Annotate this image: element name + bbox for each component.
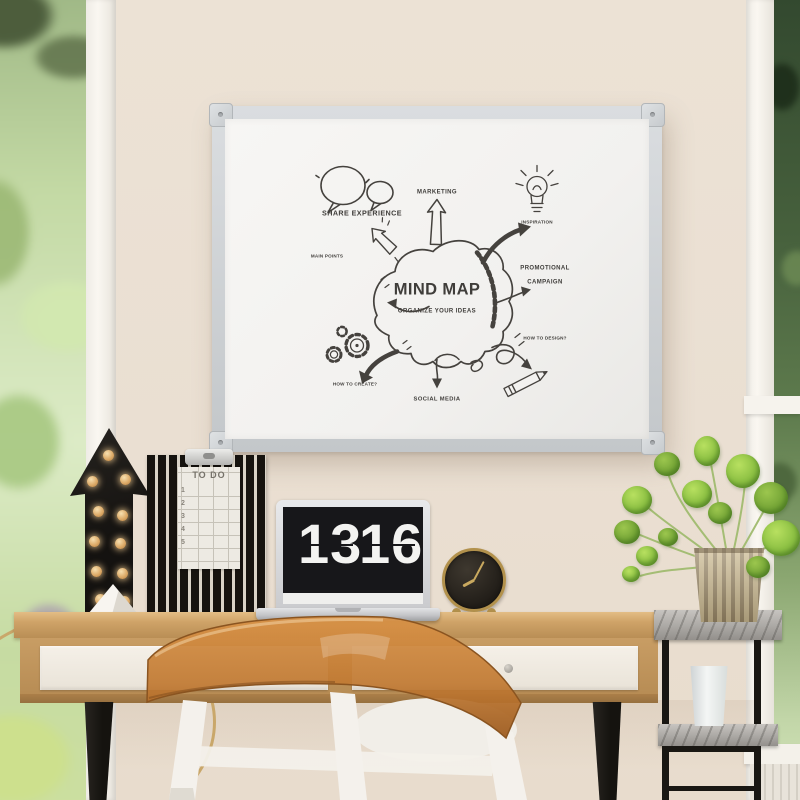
loop-arrow-icon <box>492 345 532 370</box>
side-table-leg <box>662 640 669 800</box>
marquee-bulb <box>87 476 98 487</box>
striped-clipboard: TO DO 1 2 3 4 5 <box>147 455 266 615</box>
curved-arrow-right-icon <box>483 223 531 263</box>
label-share-experience: SHARE EXPERIENCE <box>322 209 402 218</box>
hour-hand <box>462 579 475 588</box>
label-main-points: MAIN POINTS <box>311 254 343 259</box>
label-campaign: CAMPAIGN <box>527 280 562 286</box>
screen-bottom-strip <box>283 593 423 604</box>
clipboard-clip <box>185 449 233 465</box>
side-table-shelf <box>658 724 778 746</box>
minute-hand <box>473 561 485 580</box>
plant-leaf <box>708 502 732 524</box>
plant-leaf <box>754 482 788 514</box>
marquee-bulb <box>103 450 114 461</box>
label-promotional: PROMOTIONAL <box>520 266 569 272</box>
arrow-up-icon <box>426 199 446 245</box>
gears-icon <box>327 327 368 362</box>
label-social-media: SOCIAL MEDIA <box>414 397 461 403</box>
mind-map-sketch: SHARE EXPERIENCE MARKETING INSPIR <box>225 119 649 439</box>
todo-row-number: 5 <box>181 539 185 546</box>
todo-row-number: 4 <box>181 526 185 533</box>
white-mug <box>688 666 730 726</box>
laptop: 13 16 <box>276 500 430 612</box>
label-marketing: MARKETING <box>417 190 457 196</box>
analog-clock <box>442 548 506 612</box>
plant-leaf <box>622 566 640 582</box>
label-inspiration: INSPIRATION <box>521 220 553 225</box>
todo-row-number: 2 <box>181 500 185 507</box>
arrow-down-icon <box>432 360 442 389</box>
plant-leaf <box>622 486 652 514</box>
label-how-to-design: HOW TO DESIGN? <box>523 336 566 341</box>
plant-leaf <box>658 528 678 546</box>
mindmap-title: MIND MAP <box>394 281 481 299</box>
whiteboard-surface: SHARE EXPERIENCE MARKETING INSPIR <box>225 119 649 439</box>
side-table-bar <box>662 786 761 791</box>
flip-clock-seam <box>295 544 353 546</box>
marquee-bulb <box>115 538 126 549</box>
pencil-icon <box>504 368 549 397</box>
plant-leaf <box>636 546 658 566</box>
side-table-bar <box>662 746 761 752</box>
lightbulb-icon <box>516 166 558 212</box>
whiteboard: SHARE EXPERIENCE MARKETING INSPIR <box>212 106 662 452</box>
speech-bubbles-icon <box>316 167 393 213</box>
plant-leaf <box>614 520 640 544</box>
amber-chair <box>135 608 535 800</box>
flip-clock-seam <box>357 544 415 546</box>
todo-title: TO DO <box>178 470 240 480</box>
todo-row-number: 1 <box>181 487 185 494</box>
plant-leaf <box>654 452 680 476</box>
side-table-leg <box>754 640 761 800</box>
plant-leaf <box>694 436 720 466</box>
plant-leaf <box>746 556 770 578</box>
arrow-right-icon <box>497 287 531 303</box>
label-how-to-create: HOW TO CREATE? <box>333 382 377 387</box>
todo-paper: TO DO 1 2 3 4 5 <box>178 467 240 569</box>
marquee-bulb <box>89 536 100 547</box>
plant-leaf <box>726 454 760 488</box>
arrow-upleft-icon <box>365 216 406 257</box>
marquee-bulb <box>91 566 102 577</box>
plant-leaf <box>762 520 800 556</box>
plant-leaf <box>682 480 712 508</box>
marquee-bulb <box>93 506 104 517</box>
marquee-bulb <box>117 510 128 521</box>
marquee-bulb <box>117 568 128 579</box>
marquee-bulb <box>120 474 131 485</box>
laptop-screen: 13 16 <box>283 507 423 604</box>
right-window-sill <box>744 396 800 414</box>
home-office-photo: SHARE EXPERIENCE MARKETING INSPIR <box>0 0 800 800</box>
todo-row-number: 3 <box>181 513 185 520</box>
